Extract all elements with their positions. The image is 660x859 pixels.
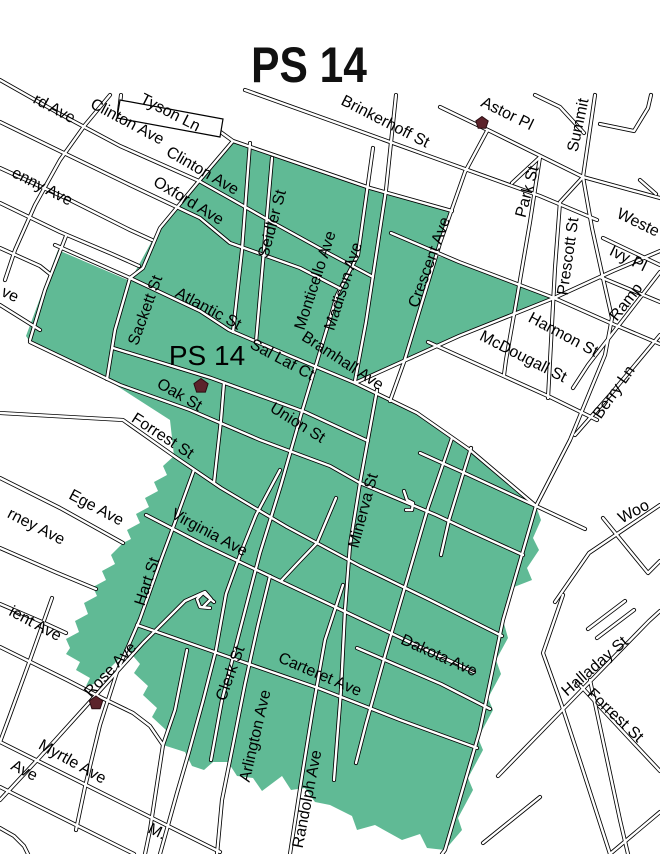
svg-text:PS 14: PS 14 bbox=[169, 340, 245, 371]
